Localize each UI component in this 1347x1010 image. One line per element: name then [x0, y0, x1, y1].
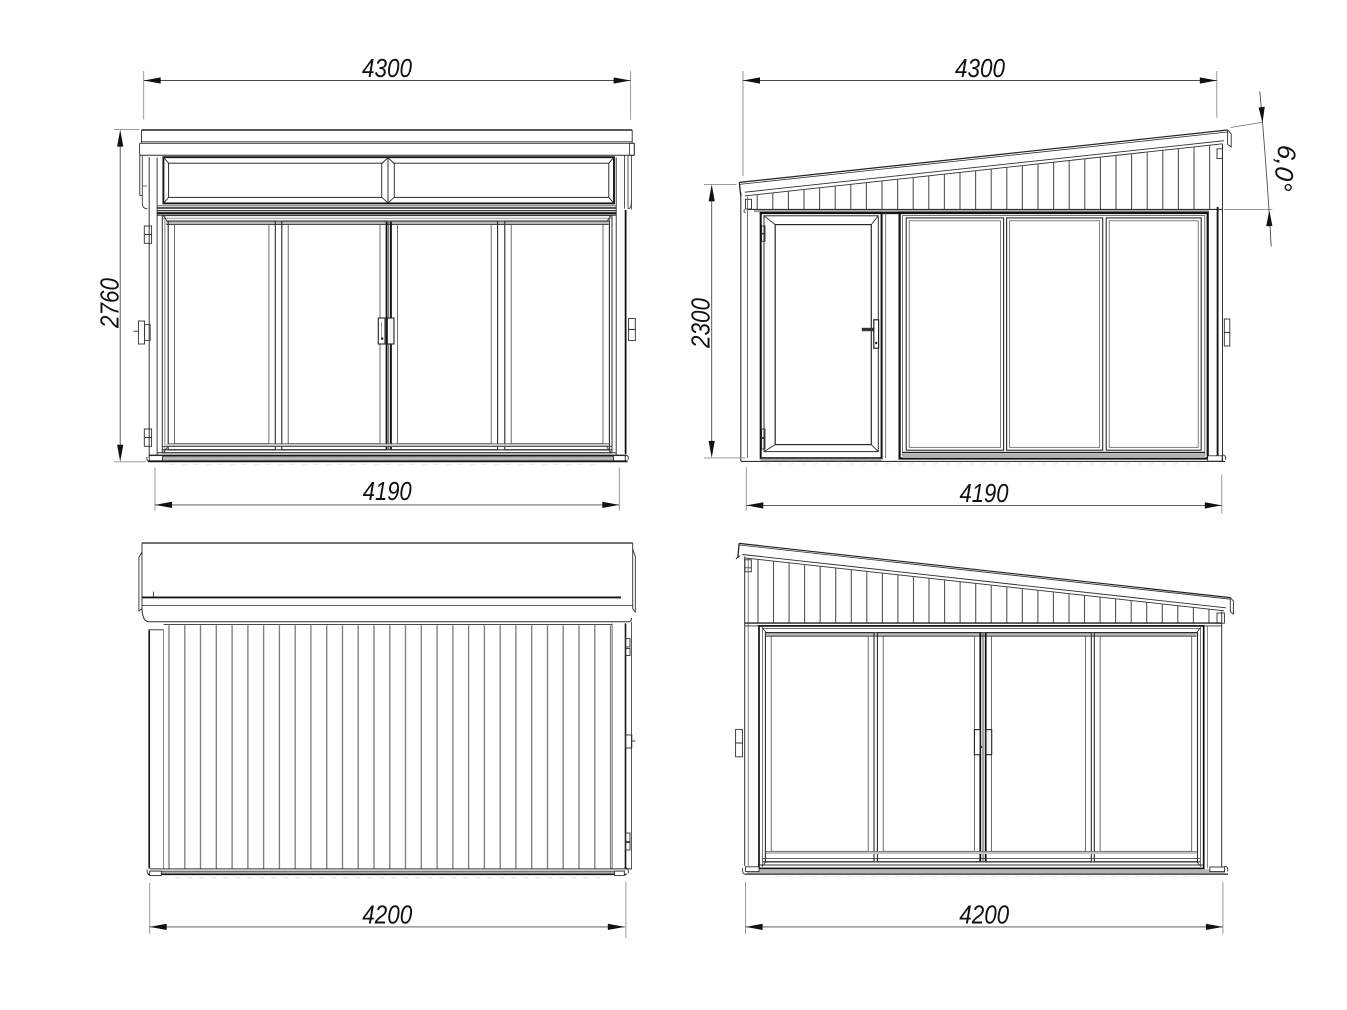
- svg-text:4190: 4190: [960, 478, 1009, 508]
- svg-text:4200: 4200: [362, 900, 412, 930]
- svg-text:4190: 4190: [363, 476, 412, 506]
- svg-text:2760: 2760: [95, 278, 125, 329]
- svg-text:4200: 4200: [959, 900, 1009, 930]
- svg-text:6,0°: 6,0°: [1267, 143, 1302, 192]
- svg-text:4300: 4300: [955, 53, 1005, 83]
- svg-text:4300: 4300: [362, 53, 412, 83]
- svg-text:2300: 2300: [686, 298, 716, 349]
